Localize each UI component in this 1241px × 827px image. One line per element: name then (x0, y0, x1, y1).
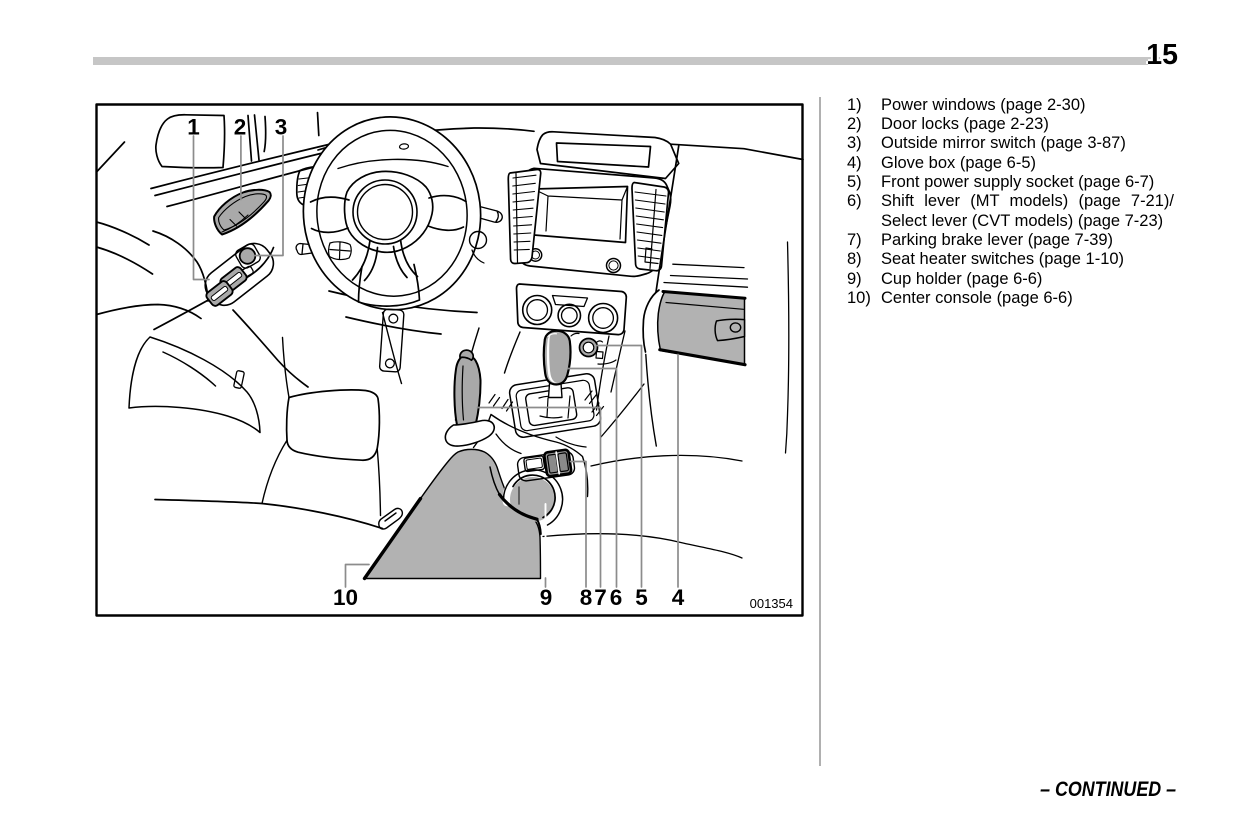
svg-text:6: 6 (610, 585, 623, 610)
svg-text:2: 2 (234, 115, 247, 140)
svg-text:8: 8 (580, 585, 593, 610)
svg-text:1: 1 (187, 115, 200, 140)
svg-text:001354: 001354 (750, 596, 793, 611)
svg-text:5: 5 (635, 585, 648, 610)
svg-text:7: 7 (594, 585, 607, 610)
svg-text:4: 4 (672, 585, 685, 610)
svg-text:10: 10 (333, 585, 358, 610)
svg-text:9: 9 (540, 585, 553, 610)
svg-text:3: 3 (275, 115, 288, 140)
